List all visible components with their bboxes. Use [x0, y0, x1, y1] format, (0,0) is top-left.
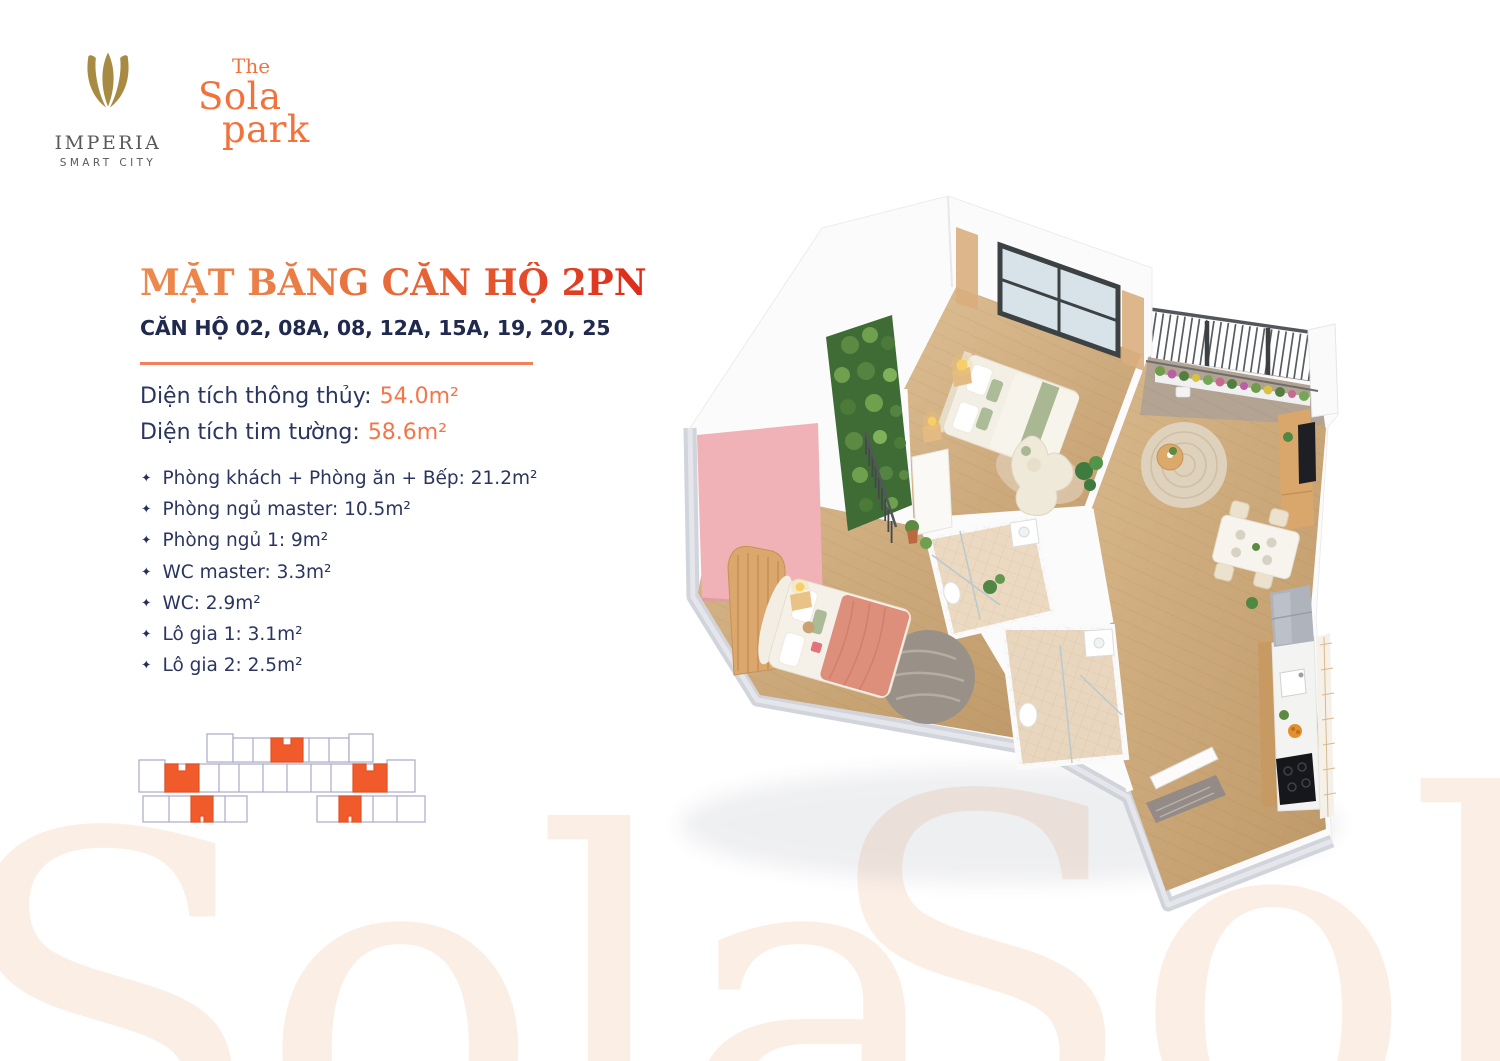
list-item: ✦WC: 2.9m² — [141, 593, 537, 624]
gross-area-line: Diện tích tim tường:58.6m² — [140, 420, 447, 445]
star-bullet-icon: ✦ — [141, 564, 151, 579]
list-item: ✦Lô gia 1: 3.1m² — [141, 624, 537, 655]
room-item-label: Lô gia 2: 2.5m² — [162, 655, 302, 676]
wc-2 — [1002, 627, 1126, 767]
star-bullet-icon: ✦ — [141, 470, 151, 485]
gross-area-label: Diện tích tim tường: — [140, 420, 360, 445]
fruit-bowl — [1288, 724, 1302, 738]
room-item-label: WC: 2.9m² — [162, 593, 260, 614]
imperia-logo: IMPERIA SMART CITY — [50, 50, 166, 169]
room-item-label: Lô gia 1: 3.1m² — [162, 624, 302, 645]
star-bullet-icon: ✦ — [141, 595, 151, 610]
star-bullet-icon: ✦ — [141, 626, 151, 641]
imperia-tulip-icon — [80, 50, 136, 126]
living-rug — [1141, 422, 1227, 508]
gross-area-value: 58.6m² — [368, 420, 447, 445]
sola-logo-the: The — [232, 56, 310, 76]
room-item-label: Phòng ngủ 1: 9m² — [162, 530, 328, 551]
wardrobe — [912, 449, 952, 535]
net-area-line: Diện tích thông thủy:54.0m² — [140, 384, 459, 409]
net-area-value: 54.0m² — [380, 384, 459, 409]
imperia-tagline: SMART CITY — [50, 157, 166, 169]
list-item: ✦Lô gia 2: 2.5m² — [141, 655, 537, 686]
sola-logo-park: park — [222, 111, 310, 148]
sofa-cushion — [1027, 458, 1041, 472]
net-area-label: Diện tích thông thủy: — [140, 384, 372, 409]
list-item: ✦Phòng ngủ master: 10.5m² — [141, 499, 537, 530]
sofa-pillow — [1021, 446, 1031, 456]
unit-numbers-subtitle: CĂN HỘ 02, 08A, 08, 12A, 15A, 19, 20, 25 — [140, 316, 610, 340]
page-title: MẶT BẰNG CĂN HỘ 2PN — [140, 262, 647, 304]
room-area-list: ✦Phòng khách + Phòng ăn + Bếp: 21.2m² ✦P… — [141, 468, 537, 686]
star-bullet-icon: ✦ — [141, 657, 151, 672]
coffee-table — [1157, 444, 1183, 470]
brochure-page: Sola Sola IMPERIA SMART CITY The Sola pa… — [0, 0, 1500, 1061]
wc-master — [928, 517, 1054, 637]
star-bullet-icon: ✦ — [141, 532, 151, 547]
balcony-pillar — [1308, 324, 1338, 417]
room-item-label: Phòng ngủ master: 10.5m² — [162, 499, 410, 520]
building-keyplan-diagram — [133, 730, 448, 830]
list-item: ✦Phòng khách + Phòng ăn + Bếp: 21.2m² — [141, 468, 537, 499]
sola-park-logo: The Sola park — [198, 56, 310, 148]
star-bullet-icon: ✦ — [141, 501, 151, 516]
cooktop — [1276, 753, 1316, 805]
list-item: ✦Phòng ngủ 1: 9m² — [141, 530, 537, 561]
orange-divider — [140, 362, 533, 365]
list-item: ✦WC master: 3.3m² — [141, 562, 537, 593]
imperia-wordmark: IMPERIA — [50, 132, 166, 154]
room-item-label: Phòng khách + Phòng ăn + Bếp: 21.2m² — [162, 468, 537, 489]
apartment-3d-floorplan — [660, 175, 1360, 915]
room-item-label: WC master: 3.3m² — [162, 562, 331, 583]
balcony-chair — [1176, 387, 1190, 397]
